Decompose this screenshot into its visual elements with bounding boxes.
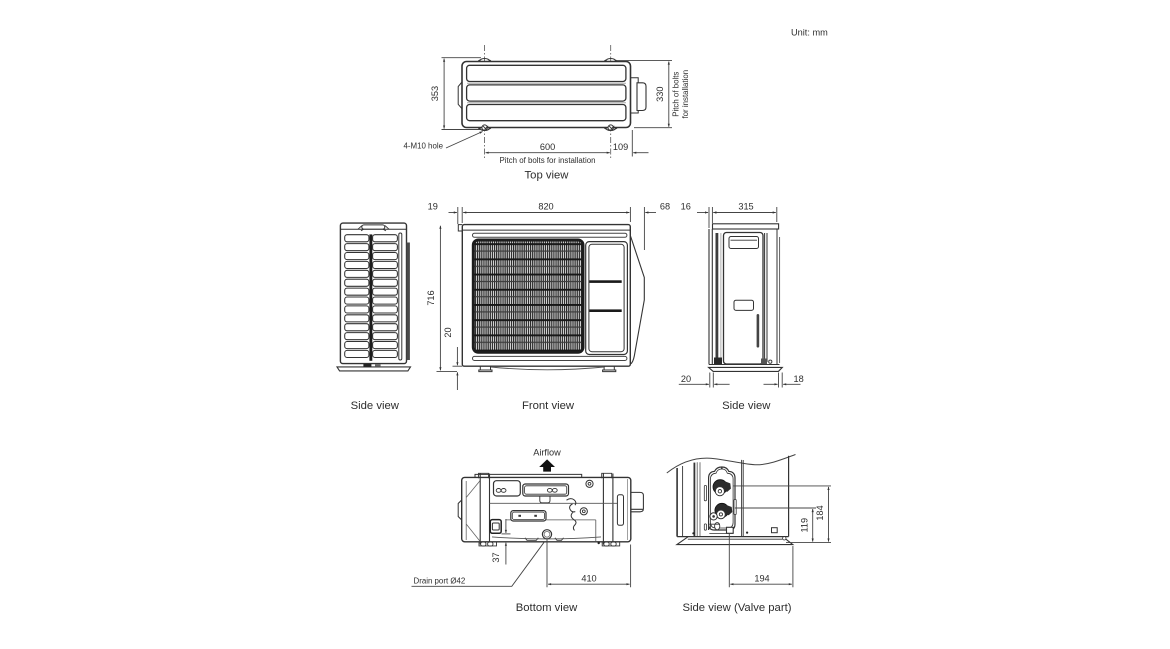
svg-text:37: 37: [491, 552, 501, 562]
svg-text:184: 184: [815, 505, 825, 520]
svg-text:119: 119: [799, 518, 809, 533]
svg-text:for installation: for installation: [681, 70, 690, 119]
svg-text:Front view: Front view: [522, 400, 575, 412]
svg-text:20: 20: [443, 327, 453, 337]
svg-text:16: 16: [681, 202, 691, 212]
svg-text:Pitch of bolts for installatio: Pitch of bolts for installation: [499, 156, 595, 165]
svg-text:Side view: Side view: [722, 400, 771, 412]
svg-text:18: 18: [793, 374, 803, 384]
svg-text:Bottom view: Bottom view: [516, 602, 578, 614]
svg-text:20: 20: [681, 374, 691, 384]
svg-text:716: 716: [426, 290, 436, 305]
svg-text:410: 410: [581, 574, 596, 584]
svg-text:Top view: Top view: [525, 169, 570, 181]
svg-text:Drain port Ø42: Drain port Ø42: [414, 577, 466, 586]
svg-text:194: 194: [754, 574, 769, 584]
svg-text:330: 330: [655, 87, 665, 102]
svg-text:68: 68: [660, 202, 670, 212]
svg-text:19: 19: [428, 202, 438, 212]
svg-text:315: 315: [738, 202, 753, 212]
svg-text:Side view: Side view: [351, 400, 400, 412]
svg-text:Airflow: Airflow: [533, 448, 561, 458]
svg-text:353: 353: [430, 86, 440, 101]
svg-text:4-M10 hole: 4-M10 hole: [404, 142, 444, 151]
svg-text:Pitch of bolts: Pitch of bolts: [672, 72, 681, 117]
svg-text:Side view (Valve part): Side view (Valve part): [682, 602, 791, 614]
svg-text:820: 820: [538, 202, 553, 212]
svg-text:109: 109: [613, 142, 628, 152]
svg-text:Unit: mm: Unit: mm: [791, 28, 828, 38]
svg-text:600: 600: [540, 142, 555, 152]
